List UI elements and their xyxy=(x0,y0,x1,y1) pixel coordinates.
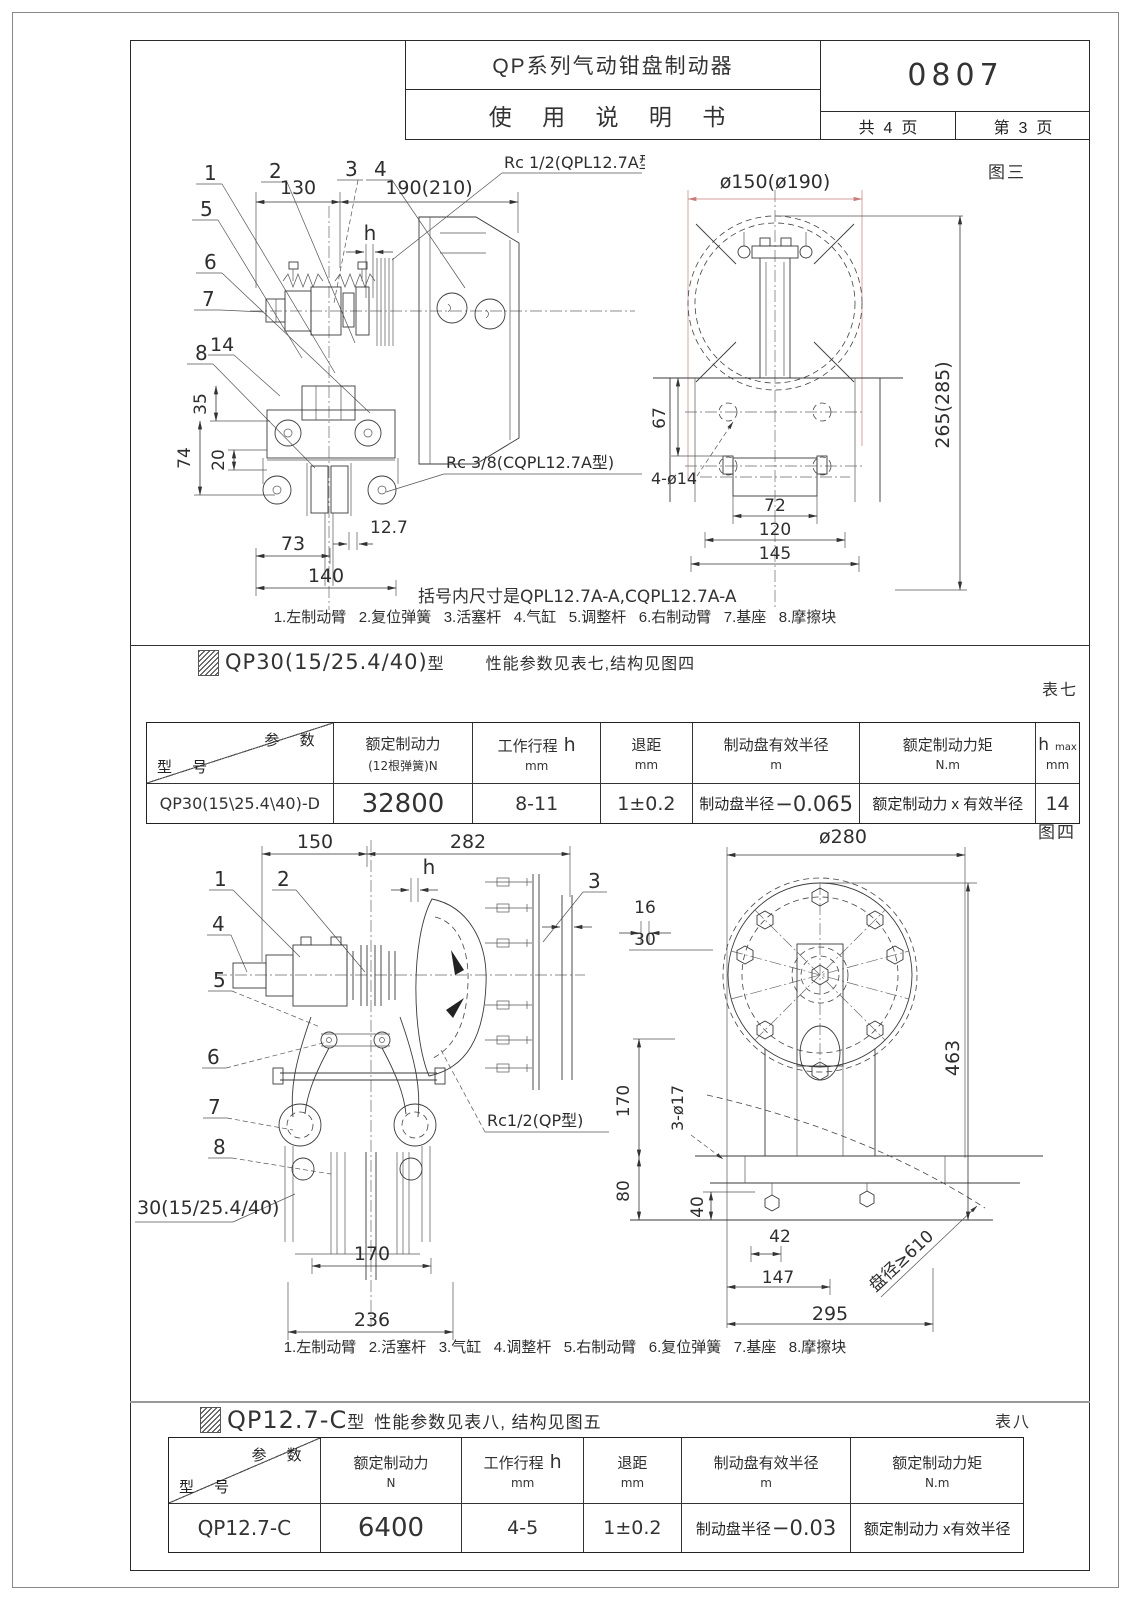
part-label-4: 4 xyxy=(212,912,225,936)
table8-header-row: 参 数 型 号 额定制动力 N 工作行程h mm 退距 mm 制动盘有效半径 m… xyxy=(169,1438,1023,1504)
part-label-3: 3 xyxy=(345,157,358,181)
dim-72: 72 xyxy=(764,496,786,516)
callout-disc-dia: 盘径≥610 xyxy=(865,1227,938,1297)
dim-35: 35 xyxy=(191,393,211,415)
dim-h: h xyxy=(364,221,377,245)
col-title: 工作行程 xyxy=(498,735,558,756)
dim-74: 74 xyxy=(175,447,195,469)
fig3-front-texts: ø150(ø190) 265(285) 67 4-ø14 72 120 145 xyxy=(650,171,954,564)
page-counter: 共 4 页 第 3 页 xyxy=(821,112,1090,139)
cell-model: QP12.7-C xyxy=(169,1504,321,1552)
section-model: QP30(15/25.4/40) xyxy=(225,650,428,674)
part-label-3: 3 xyxy=(588,869,601,893)
fig3-side-geometry xyxy=(187,173,642,610)
fig3-caption: 图三 xyxy=(988,158,1026,183)
part-label-2: 2 xyxy=(277,867,290,891)
col-unit: N xyxy=(386,1476,395,1490)
dim-42: 42 xyxy=(769,1227,791,1247)
part-label-5: 5 xyxy=(200,197,213,221)
dim-h: h xyxy=(423,855,436,879)
part-label-5: 5 xyxy=(213,968,226,992)
col-title: 退距 xyxy=(631,734,661,755)
table7-col-radius: 制动盘有效半径 m xyxy=(693,723,861,783)
cell-force: 6400 xyxy=(321,1504,463,1552)
callout-rc12: Rc 1/2(QPL12.7A型) xyxy=(504,153,645,172)
part-label-8: 8 xyxy=(195,341,208,365)
table8-col-radius: 制动盘有效半径 m xyxy=(682,1438,852,1503)
fig3-front-geometry xyxy=(653,190,967,610)
col-unit: mm xyxy=(525,759,548,773)
section-model-suffix: 型 xyxy=(347,1408,364,1433)
dim-282: 282 xyxy=(450,831,486,853)
table8-tag: 表八 xyxy=(995,1408,1031,1432)
fig4-caption: 图四 xyxy=(1038,818,1076,843)
table7-col-stroke: 工作行程h mm xyxy=(473,723,601,783)
table8-col-force: 额定制动力 N xyxy=(321,1438,463,1503)
part-label-6: 6 xyxy=(204,250,217,274)
callout-3-dia17: 3-ø17 xyxy=(668,1085,687,1131)
fig3-note: 括号内尺寸是QPL12.7A-A,CQPL12.7A-A xyxy=(418,582,736,607)
dim-120: 120 xyxy=(759,520,791,540)
col-unit: mm xyxy=(621,1476,644,1490)
table8-corner-cell: 参 数 型 号 xyxy=(169,1438,321,1503)
fig3-side-view: 1 2 3 4 5 6 7 8 14 130 190(210) h Rc 1/2… xyxy=(130,148,645,648)
radius-label: 制动盘半径 xyxy=(696,1518,771,1539)
table8-data-row: QP12.7-C 6400 4-5 1±0.2 制动盘半径−0.03 额定制动力… xyxy=(169,1504,1023,1552)
title-block: QP系列气动钳盘制动器 使 用 说 明 书 0807 共 4 页 第 3 页 xyxy=(405,40,1090,140)
col-unit: m xyxy=(770,758,782,772)
dim-67: 67 xyxy=(650,407,670,429)
cell-force: 32800 xyxy=(334,784,474,823)
part-label-8: 8 xyxy=(213,1135,226,1159)
col-unit: mm xyxy=(511,1476,534,1490)
dim-130: 130 xyxy=(280,177,316,199)
part-label-7: 7 xyxy=(202,287,215,311)
dim-170: 170 xyxy=(354,1243,390,1265)
callout-rc38: Rc 3/8(CQPL12.7A型) xyxy=(446,453,614,472)
document-title: QP系列气动钳盘制动器 xyxy=(406,40,820,90)
part-label-1: 1 xyxy=(204,161,217,185)
fig3-front-view: ø150(ø190) 265(285) 67 4-ø14 72 120 145 xyxy=(645,150,1090,630)
section-qp30-header: QP30(15/25.4/40) 型 性能参数见表七,结构见图四 xyxy=(198,650,695,676)
table7-col-retract: 退距 mm xyxy=(601,723,693,783)
pages-total: 共 4 页 xyxy=(821,112,956,139)
corner-model: 型 号 xyxy=(157,756,215,777)
col-title: 工作行程 xyxy=(484,1452,544,1473)
section-divider-1 xyxy=(130,645,1090,646)
hatch-icon xyxy=(198,650,219,676)
corner-param: 参 数 xyxy=(264,729,322,750)
title-block-right: 0807 共 4 页 第 3 页 xyxy=(821,40,1090,139)
model-callout: 30(15/25.4/40) xyxy=(137,1197,279,1219)
manual-page: QP系列气动钳盘制动器 使 用 说 明 书 0807 共 4 页 第 3 页 xyxy=(0,0,1131,1600)
col-unit: N.m xyxy=(936,758,960,772)
fig4-legend: 1.左制动臂 2.活塞杆 3.气缸 4.调整杆 5.右制动臂 6.复位弹簧 7.… xyxy=(140,1336,990,1357)
fig4-side-texts: 1 2 3 4 5 6 7 8 150 282 h Rc1/2(QP型) 30(… xyxy=(137,831,601,1331)
fig3-side-texts: 1 2 3 4 5 6 7 8 14 130 190(210) h Rc 1/2… xyxy=(175,153,645,587)
part-label-7: 7 xyxy=(208,1095,221,1119)
cell-model: QP30(15\25.4\40)-D xyxy=(147,784,334,823)
table7-col-hmax: hmax mm xyxy=(1036,723,1079,783)
dim-295: 295 xyxy=(812,1303,848,1325)
dim-147: 147 xyxy=(762,1268,794,1288)
section-model: QP12.7-C xyxy=(227,1406,347,1434)
part-label-6: 6 xyxy=(207,1045,220,1069)
page-number: 第 3 页 xyxy=(956,112,1090,139)
fig4-front-texts: ø280 463 16 30 170 80 40 3-ø17 42 147 29… xyxy=(615,826,964,1325)
col-title: 额定制动力 xyxy=(365,733,440,754)
col-unit: m xyxy=(760,1476,772,1490)
col-unit: mm xyxy=(1046,758,1069,772)
table7-corner-cell: 参 数 型 号 xyxy=(147,723,334,783)
table7: 参 数 型 号 额定制动力 (12根弹簧)N 工作行程h mm 退距 mm 制动… xyxy=(146,722,1080,824)
cell-retract: 1±0.2 xyxy=(584,1504,682,1552)
col-unit: mm xyxy=(635,758,658,772)
part-label-1: 1 xyxy=(214,867,227,891)
cell-stroke: 8-11 xyxy=(473,784,601,823)
dim-236: 236 xyxy=(354,1309,390,1331)
fig4-side-view: 1 2 3 4 5 6 7 8 150 282 h Rc1/2(QP型) 30(… xyxy=(135,822,660,1342)
dim-16: 16 xyxy=(634,898,656,918)
dim-170-v: 170 xyxy=(615,1085,634,1117)
dim-265-285: 265(285) xyxy=(932,361,954,448)
dim-463: 463 xyxy=(942,1040,964,1076)
fig4-side-geometry xyxy=(135,840,609,1340)
dim-dia150: ø150(ø190) xyxy=(720,171,831,193)
fig3-legend: 1.左制动臂 2.复位弹簧 3.活塞杆 4.气缸 5.调整杆 6.右制动臂 7.… xyxy=(130,606,980,627)
radius-value: −0.065 xyxy=(775,792,853,816)
part-label-14: 14 xyxy=(210,334,234,356)
corner-model: 型 号 xyxy=(179,1476,237,1497)
col-title-sym: h xyxy=(550,1451,562,1473)
cell-torque: 额定制动力 x有效半径 xyxy=(851,1504,1023,1552)
dim-40: 40 xyxy=(688,1196,708,1218)
table8-col-retract: 退距 mm xyxy=(584,1438,682,1503)
corner-param: 参 数 xyxy=(251,1444,309,1465)
dim-73: 73 xyxy=(281,533,305,555)
cell-radius: 制动盘半径−0.03 xyxy=(682,1504,852,1552)
dim-140: 140 xyxy=(308,565,344,587)
col-title: 额定制动力 xyxy=(353,1452,428,1473)
col-title-sub: max xyxy=(1055,742,1077,753)
hatch-icon xyxy=(200,1407,221,1433)
table7-tag: 表七 xyxy=(1042,676,1078,700)
table7-col-force: 额定制动力 (12根弹簧)N xyxy=(334,723,474,783)
table8-col-torque: 额定制动力矩 N.m xyxy=(851,1438,1023,1503)
document-subtitle: 使 用 说 明 书 xyxy=(406,90,820,139)
col-title: 额定制动力矩 xyxy=(903,734,993,755)
title-block-left: QP系列气动钳盘制动器 使 用 说 明 书 xyxy=(406,40,821,139)
section-desc: 性能参数见表八, 结构见图五 xyxy=(374,1408,601,1433)
document-number: 0807 xyxy=(821,40,1090,112)
col-title: 制动盘有效半径 xyxy=(714,1452,819,1473)
radius-label: 制动盘半径 xyxy=(699,793,774,814)
dim-dia280: ø280 xyxy=(819,826,867,848)
dim-30: 30 xyxy=(634,930,656,950)
dim-80: 80 xyxy=(615,1180,634,1202)
col-title-sym: h xyxy=(564,734,576,756)
callout-4-dia14: 4-ø14 xyxy=(651,469,697,488)
section-divider-2 xyxy=(130,1401,1090,1403)
cell-stroke: 4-5 xyxy=(462,1504,584,1552)
col-title: h xyxy=(1038,735,1049,755)
section-qp127-header: QP12.7-C 型 性能参数见表八, 结构见图五 xyxy=(200,1406,602,1434)
callout-rc: Rc1/2(QP型) xyxy=(487,1111,583,1130)
dim-145: 145 xyxy=(759,544,791,564)
col-unit: N.m xyxy=(925,1476,949,1490)
dim-20: 20 xyxy=(209,449,229,471)
fig4-front-view: ø280 463 16 30 170 80 40 3-ø17 42 147 29… xyxy=(615,813,1090,1348)
dim-150: 150 xyxy=(297,831,333,853)
col-unit: (12根弹簧)N xyxy=(368,757,438,774)
dim-12-7: 12.7 xyxy=(370,518,408,538)
dim-190-210: 190(210) xyxy=(385,177,472,199)
col-title: 退距 xyxy=(617,1452,647,1473)
table7-col-torque: 额定制动力矩 N.m xyxy=(860,723,1036,783)
table8: 参 数 型 号 额定制动力 N 工作行程h mm 退距 mm 制动盘有效半径 m… xyxy=(168,1437,1024,1553)
section-model-suffix: 型 xyxy=(428,650,444,674)
table7-header-row: 参 数 型 号 额定制动力 (12根弹簧)N 工作行程h mm 退距 mm 制动… xyxy=(147,723,1079,784)
table8-col-stroke: 工作行程h mm xyxy=(462,1438,584,1503)
col-title: 制动盘有效半径 xyxy=(724,734,829,755)
section-desc: 性能参数见表七,结构见图四 xyxy=(486,650,695,674)
col-title: 额定制动力矩 xyxy=(892,1452,982,1473)
radius-value: −0.03 xyxy=(772,1516,836,1540)
